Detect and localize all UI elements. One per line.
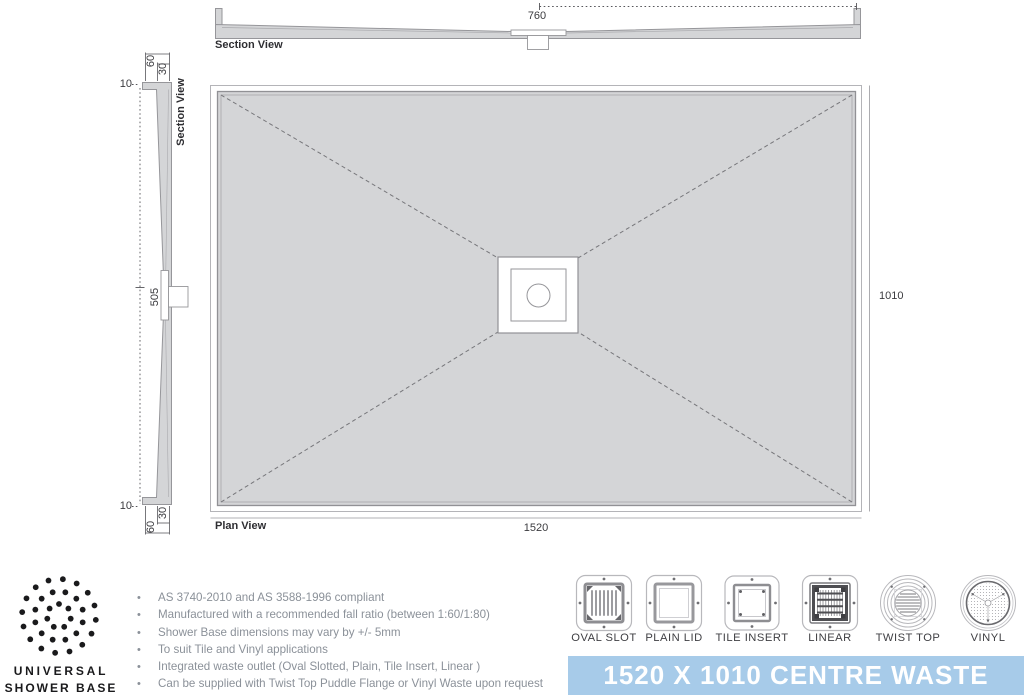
dim-10-top: 10 (108, 78, 132, 90)
bullet-icon: • (133, 678, 158, 690)
logo-wordmark-line2: SHOWER BASE (0, 681, 122, 695)
dim-1010: 1010 (879, 290, 903, 302)
feature-text: To suit Tile and Vinyl applications (158, 644, 328, 656)
feature-item: •Integrated waste outlet (Oval Slotted, … (133, 661, 603, 673)
waste-option-label-vinyl: VINYL (940, 632, 1024, 644)
feature-list: •AS 3740-2010 and AS 3588-1996 compliant… (133, 592, 603, 696)
dim-30-top: 30 (157, 55, 169, 83)
spec-sheet-page: Section View 760 Section View 10 60 30 5… (0, 0, 1024, 700)
dim-30-bottom: 30 (157, 499, 169, 527)
feature-item: •To suit Tile and Vinyl applications (133, 644, 603, 656)
plain-lid-icon (647, 576, 702, 631)
centre-waste-outlet (498, 257, 578, 333)
feature-text: Can be supplied with Twist Top Puddle Fl… (158, 678, 543, 690)
feature-item: •AS 3740-2010 and AS 3588-1996 compliant (133, 592, 603, 604)
feature-item: •Manufactured with a recommended fall ra… (133, 609, 603, 621)
logo-mark-icon (19, 576, 98, 655)
dim-505: 505 (149, 269, 161, 325)
product-banner: 1520 X 1010 CENTRE WASTE (568, 656, 1024, 695)
vinyl-icon (961, 576, 1016, 631)
feature-item: •Shower Base dimensions may vary by +/- … (133, 627, 603, 639)
tile-insert-icon (725, 576, 779, 630)
bullet-icon: • (133, 609, 158, 621)
dim-10-bottom: 10 (108, 500, 132, 512)
bullet-icon: • (133, 627, 158, 639)
logo-wordmark-line1: UNIVERSAL (0, 664, 122, 678)
feature-item: •Can be supplied with Twist Top Puddle F… (133, 678, 603, 690)
plan-view-drawing (211, 86, 870, 519)
side-section-view-label: Section View (175, 76, 187, 148)
bullet-icon: • (133, 661, 158, 673)
bullet-icon: • (133, 592, 158, 604)
dim-1520: 1520 (508, 522, 564, 534)
plan-view-label: Plan View (215, 520, 266, 532)
waste-option-icons (577, 576, 1016, 631)
dim-60-bottom: 60 (145, 513, 157, 541)
bullet-icon: • (133, 644, 158, 656)
feature-text: Integrated waste outlet (Oval Slotted, P… (158, 661, 480, 673)
feature-text: Shower Base dimensions may vary by +/- 5… (158, 627, 401, 639)
feature-text: AS 3740-2010 and AS 3588-1996 compliant (158, 592, 384, 604)
dim-60-top: 60 (145, 47, 157, 75)
twist-top-icon (881, 576, 936, 631)
feature-text: Manufactured with a recommended fall rat… (158, 609, 490, 621)
product-banner-title: 1520 X 1010 CENTRE WASTE (603, 660, 988, 691)
top-section-view-label: Section View (215, 39, 283, 51)
dim-760: 760 (512, 10, 562, 22)
linear-icon (803, 576, 858, 631)
